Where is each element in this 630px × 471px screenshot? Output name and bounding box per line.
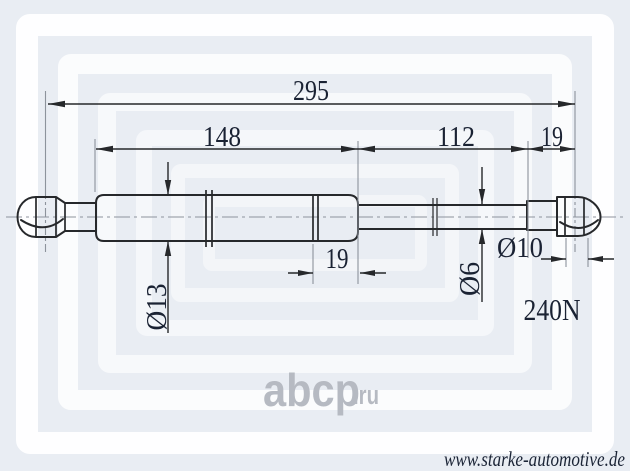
body-length-label: 148 [203, 121, 241, 153]
rod-length-label: 112 [437, 121, 475, 153]
technical-drawing-page: abcp .ru [0, 0, 630, 471]
force-rating-label: 240N [524, 292, 581, 327]
footer-url: www.starke-automotive.de [444, 447, 625, 471]
overall-length-label: 295 [293, 75, 329, 107]
body-diameter-label: Ø13 [141, 284, 173, 331]
end-fitting-length-label: 19 [541, 121, 563, 153]
piston-section-length-label: 19 [326, 243, 349, 275]
eye-diameter-label: Ø10 [497, 232, 543, 264]
gas-spring-technical-drawing: abcp .ru [0, 0, 630, 471]
abcp-watermark-tld: .ru [353, 380, 379, 410]
abcp-watermark-brand: abcp [263, 364, 360, 416]
rod-diameter-label: Ø6 [454, 262, 486, 296]
